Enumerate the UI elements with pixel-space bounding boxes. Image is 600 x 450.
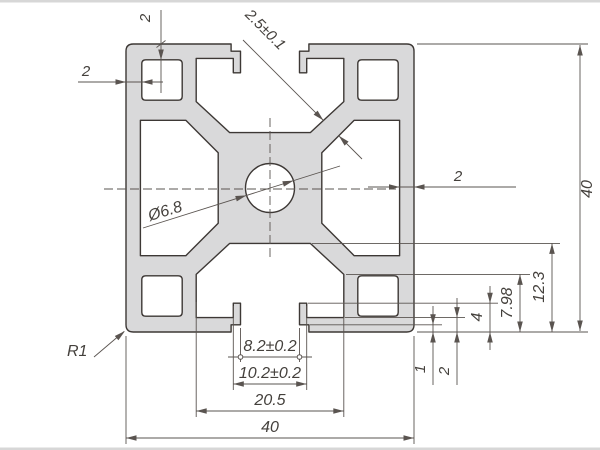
arrowhead: [454, 307, 460, 318]
dim-label-lip-depth: 2: [436, 366, 453, 376]
dim-label-notch-depth: 1: [412, 365, 429, 373]
dim-label-corner-radius: R1: [67, 343, 87, 360]
arrowhead: [142, 79, 153, 84]
dimension-corner-radius: R1: [67, 331, 125, 360]
dimension-right-wall: 2: [368, 168, 516, 190]
arrowhead: [430, 332, 436, 343]
dim-label-right-wall: 2: [453, 168, 463, 185]
arrowhead: [296, 381, 307, 386]
drawing-canvas: 2 2 2.5±0.1 2 40 12.3: [0, 0, 600, 450]
arrowhead: [549, 243, 555, 254]
arrowhead: [517, 274, 523, 285]
dimension-slot-opening: 8.2±0.2: [228, 328, 312, 362]
dim-label-slot-recess: 10.2±0.2: [239, 365, 301, 382]
arrowhead: [430, 314, 436, 325]
arrowhead: [404, 435, 415, 440]
arrowhead: [282, 181, 293, 187]
arrowhead: [577, 321, 583, 332]
arrowhead: [115, 331, 125, 340]
arrowhead: [517, 322, 523, 333]
top-edge-band: [0, 0, 600, 3]
arrowhead: [233, 381, 244, 386]
dim-label-step-depth: 4: [469, 312, 486, 321]
arrowhead: [577, 45, 583, 56]
arrowhead: [196, 408, 207, 413]
dim-label-slot-depth: 12.3: [531, 271, 548, 302]
arrowhead: [454, 332, 460, 343]
dimension-left-wall: 2: [78, 63, 163, 85]
arrowhead: [549, 322, 555, 333]
profile-drawing: 2 2 2.5±0.1 2 40 12.3: [0, 0, 600, 450]
dim-label-slot-opening: 8.2±0.2: [243, 338, 296, 355]
arrowhead: [414, 184, 425, 189]
dim-dot: [238, 355, 243, 360]
arrowhead: [333, 408, 344, 413]
dim-label-left-wall: 2: [81, 63, 91, 80]
dim-label-width: 40: [261, 419, 279, 436]
arrowhead: [487, 293, 493, 304]
dim-dot: [297, 355, 302, 360]
dim-label-height: 40: [579, 180, 596, 198]
arrowhead: [126, 435, 137, 440]
dim-label-channel-height: 7.98: [499, 287, 516, 318]
arrowhead: [487, 332, 493, 343]
dim-label-lip-thickness: 2.5±0.1: [241, 5, 289, 53]
dim-label-cavity-width: 20.5: [253, 392, 285, 409]
dim-label-top-wall: 2: [137, 13, 154, 23]
arrowhead: [116, 79, 127, 84]
